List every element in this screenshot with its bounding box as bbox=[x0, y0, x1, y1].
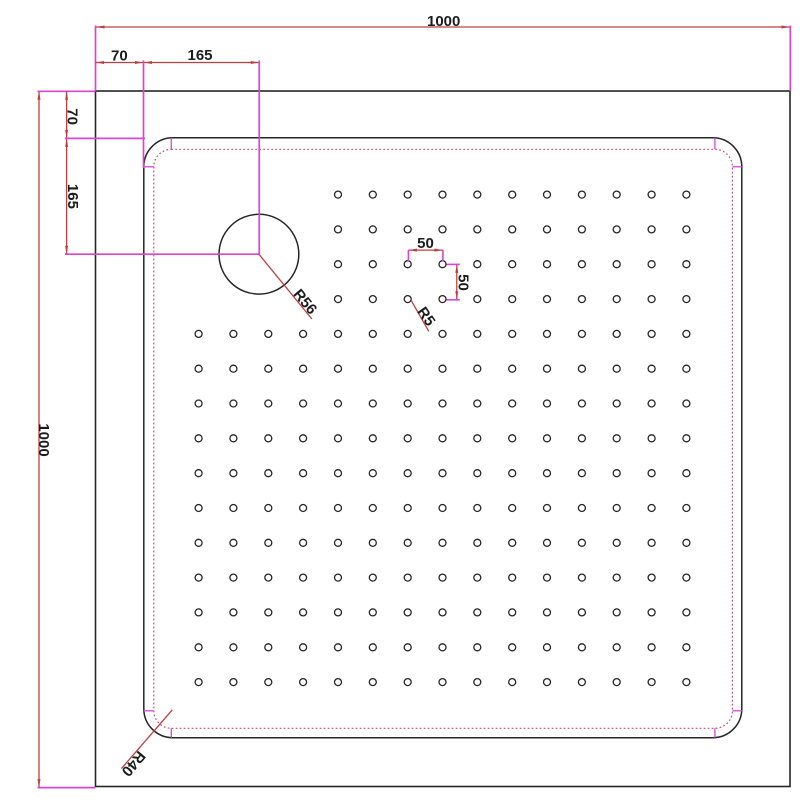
svg-text:70: 70 bbox=[64, 108, 81, 125]
svg-text:50: 50 bbox=[454, 274, 471, 291]
svg-text:1000: 1000 bbox=[35, 423, 52, 456]
svg-text:165: 165 bbox=[64, 184, 81, 209]
svg-text:70: 70 bbox=[111, 47, 128, 64]
svg-text:1000: 1000 bbox=[427, 13, 460, 30]
svg-text:50: 50 bbox=[417, 235, 434, 252]
svg-text:165: 165 bbox=[187, 47, 212, 64]
